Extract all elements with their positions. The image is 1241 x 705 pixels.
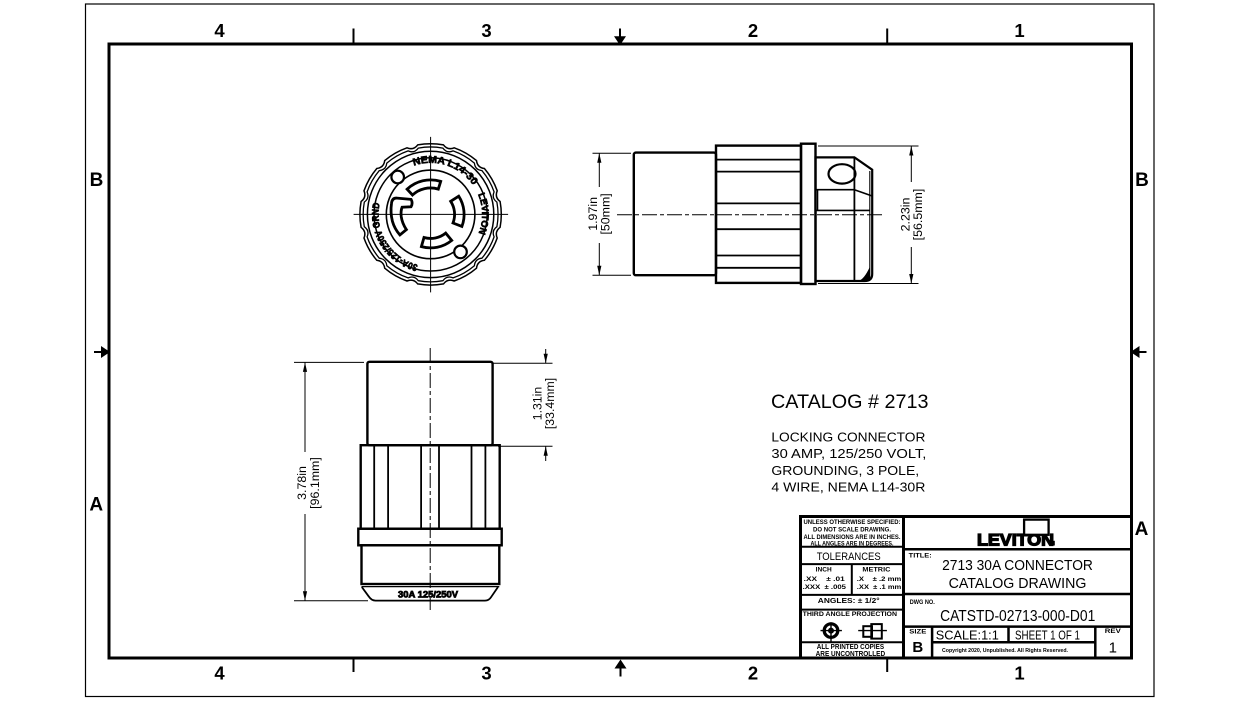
- svg-text:DO NOT SCALE DRAWING.: DO NOT SCALE DRAWING.: [813, 527, 891, 534]
- svg-text:4 WIRE, NEMA L14-30R: 4 WIRE, NEMA L14-30R: [771, 480, 925, 495]
- svg-text:CATALOG DRAWING: CATALOG DRAWING: [949, 576, 1087, 592]
- svg-text:.XX ± .01: .XX ± .01: [804, 576, 846, 583]
- svg-text:3: 3: [481, 663, 491, 684]
- svg-text:SIZE: SIZE: [909, 628, 926, 635]
- svg-text:A: A: [89, 495, 103, 516]
- svg-text:B: B: [912, 639, 923, 656]
- svg-text:INCH: INCH: [816, 566, 832, 573]
- svg-text:.X ± .2 mm: .X ± .2 mm: [857, 576, 902, 583]
- svg-text:[33.4mm]: [33.4mm]: [543, 378, 557, 429]
- svg-text:2713 30A CONNECTOR: 2713 30A CONNECTOR: [942, 558, 1093, 574]
- svg-text:2: 2: [748, 663, 758, 684]
- svg-text:1: 1: [1014, 663, 1024, 684]
- svg-text:ALL ANGLES ARE IN DEGREES.: ALL ANGLES ARE IN DEGREES.: [811, 541, 894, 548]
- svg-text:2: 2: [748, 20, 758, 41]
- svg-text:1: 1: [1109, 639, 1117, 656]
- svg-text:REV: REV: [1105, 628, 1122, 635]
- svg-text:.XXX ± .005: .XXX ± .005: [803, 584, 847, 591]
- svg-text:THIRD ANGLE PROJECTION: THIRD ANGLE PROJECTION: [803, 611, 898, 618]
- svg-text:[50mm]: [50mm]: [599, 193, 613, 234]
- svg-text:A: A: [1135, 519, 1149, 540]
- svg-text:Copyright 2020, Unpublished. A: Copyright 2020, Unpublished. All Rights …: [942, 648, 1068, 654]
- svg-text:ARE UNCONTROLLED: ARE UNCONTROLLED: [816, 649, 886, 658]
- svg-text:4: 4: [214, 663, 225, 684]
- svg-text:TOLERANCES: TOLERANCES: [817, 551, 881, 563]
- svg-text:4: 4: [214, 20, 225, 41]
- svg-text:UNLESS OTHERWISE SPECIFIED:: UNLESS OTHERWISE SPECIFIED:: [804, 519, 901, 526]
- svg-text:CATALOG # 2713: CATALOG # 2713: [771, 391, 929, 413]
- svg-text:DWG NO.: DWG NO.: [910, 599, 935, 606]
- svg-text:30 AMP, 125/250 VOLT,: 30 AMP, 125/250 VOLT,: [771, 446, 926, 461]
- svg-text:TITLE:: TITLE:: [909, 553, 932, 560]
- svg-text:[56.5mm]: [56.5mm]: [911, 189, 925, 241]
- svg-text:SHEET 1 OF 1: SHEET 1 OF 1: [1015, 628, 1080, 642]
- svg-text:1: 1: [1014, 20, 1024, 41]
- svg-text:30A 125/250V: 30A 125/250V: [398, 590, 458, 600]
- svg-text:METRIC: METRIC: [862, 566, 890, 573]
- svg-text:LOCKING CONNECTOR: LOCKING CONNECTOR: [771, 429, 925, 444]
- svg-text:GROUNDING, 3 POLE,: GROUNDING, 3 POLE,: [771, 463, 919, 478]
- svg-text:.XX ± .1 mm: .XX ± .1 mm: [857, 584, 902, 591]
- svg-text:[96.1mm]: [96.1mm]: [308, 457, 322, 509]
- svg-text:3: 3: [481, 20, 491, 41]
- svg-text:SCALE:1:1: SCALE:1:1: [936, 628, 999, 642]
- svg-text:B: B: [1135, 170, 1149, 191]
- svg-text:CATSTD-02713-000-D01: CATSTD-02713-000-D01: [940, 608, 1095, 625]
- svg-text:ANGLES: ± 1/2°: ANGLES: ± 1/2°: [818, 597, 880, 605]
- svg-text:B: B: [90, 170, 104, 191]
